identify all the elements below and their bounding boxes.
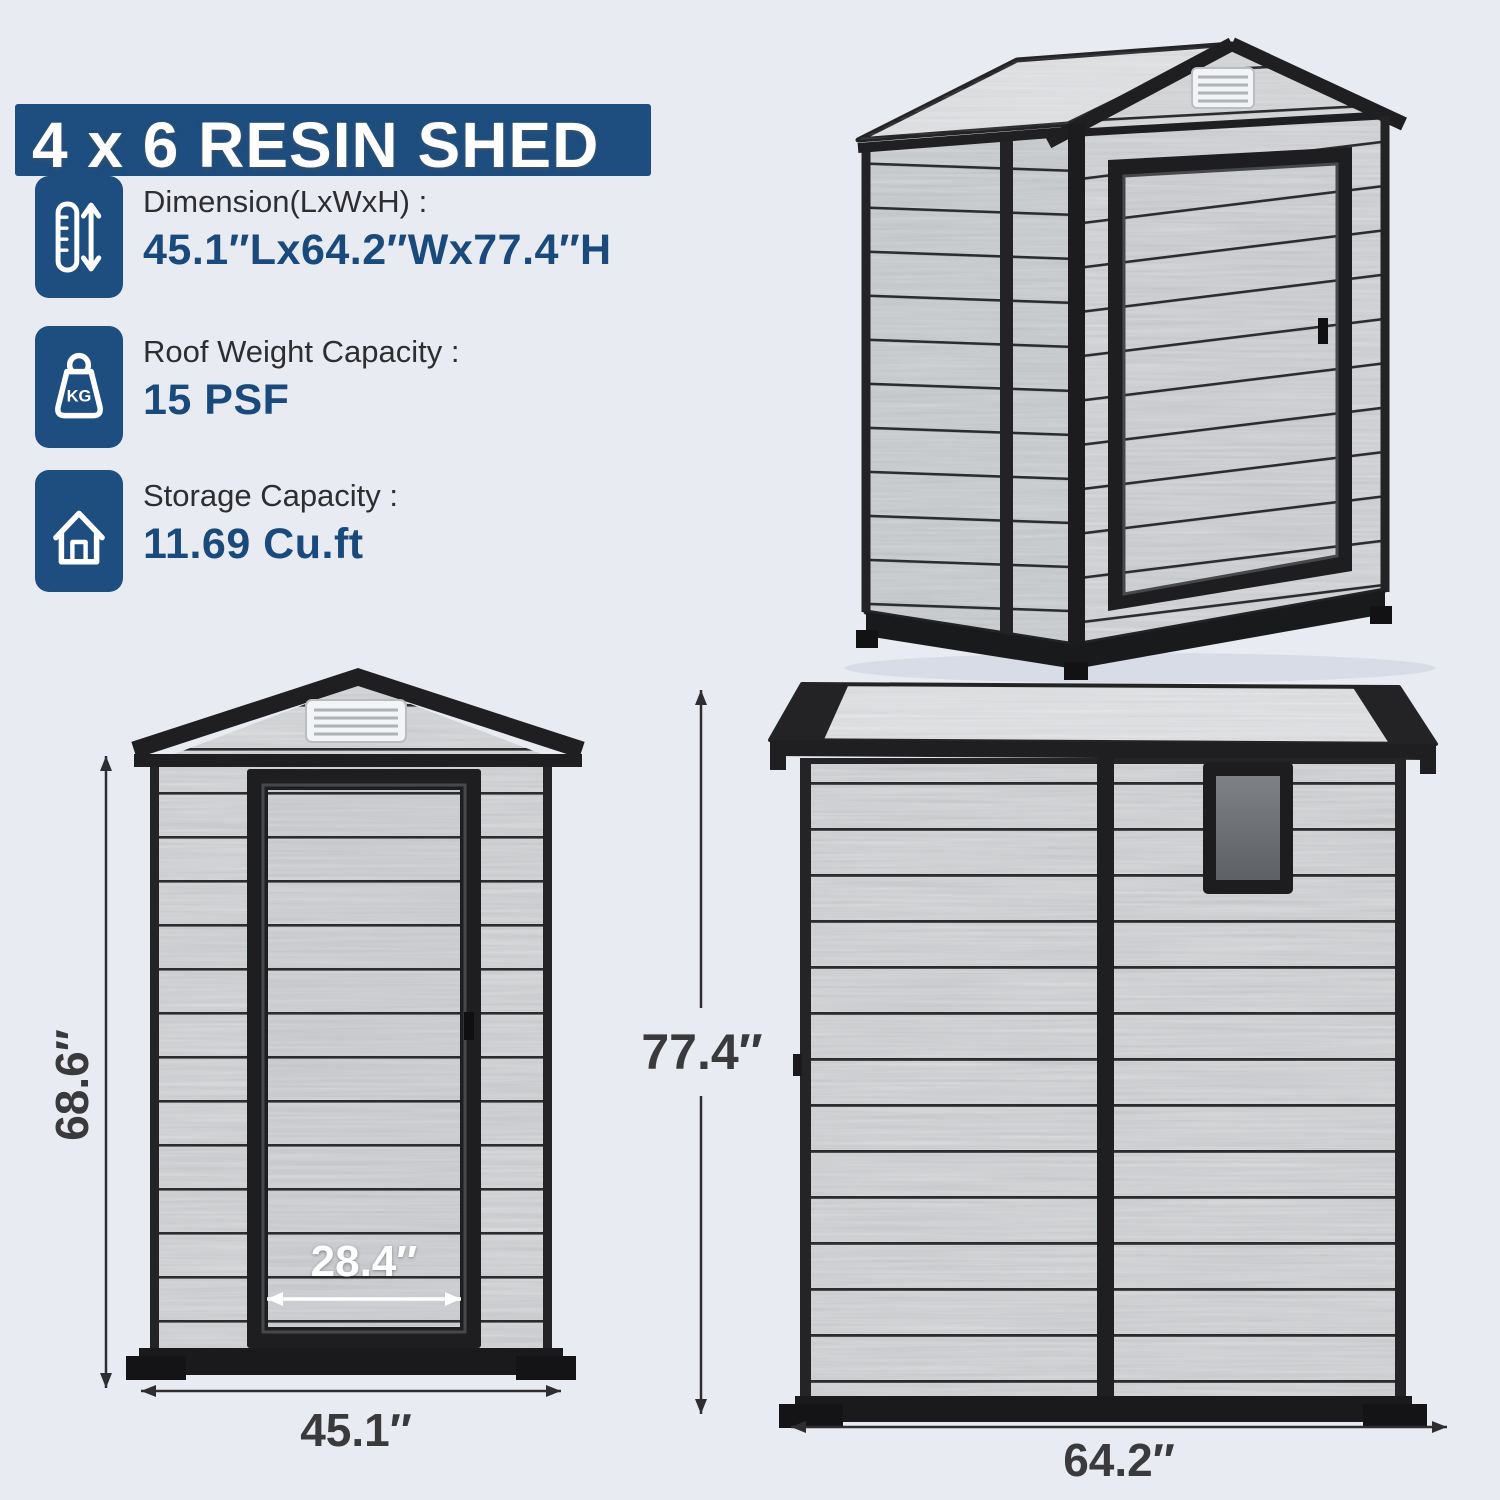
base-front bbox=[126, 1348, 576, 1380]
side-wall bbox=[800, 758, 1406, 1396]
shed-side-view bbox=[765, 680, 1440, 1428]
side-wall-3d bbox=[858, 124, 1082, 652]
window-side bbox=[1203, 762, 1293, 894]
door-3d bbox=[1108, 147, 1352, 611]
ground-shadow bbox=[845, 653, 1435, 683]
infographic-canvas: 4 x 6 RESIN SHED Dimension(LxWxH) : 45.1… bbox=[0, 0, 1500, 1500]
gable-vent-front bbox=[306, 700, 406, 742]
door-front bbox=[247, 769, 481, 1348]
door-handle-3d bbox=[1318, 318, 1328, 344]
base-side bbox=[779, 1396, 1427, 1428]
gable-vent-3d bbox=[1192, 68, 1254, 108]
shed-front-view bbox=[126, 676, 582, 1380]
door-handle-front bbox=[464, 1012, 474, 1040]
eave-fascia-front bbox=[134, 754, 582, 767]
shed-diagram-scene bbox=[0, 0, 1500, 1500]
wall-mullion bbox=[1097, 758, 1114, 1396]
shed-3d-view bbox=[845, 36, 1435, 683]
side-hinge bbox=[793, 1054, 802, 1076]
corner-post-3d bbox=[1068, 124, 1085, 648]
